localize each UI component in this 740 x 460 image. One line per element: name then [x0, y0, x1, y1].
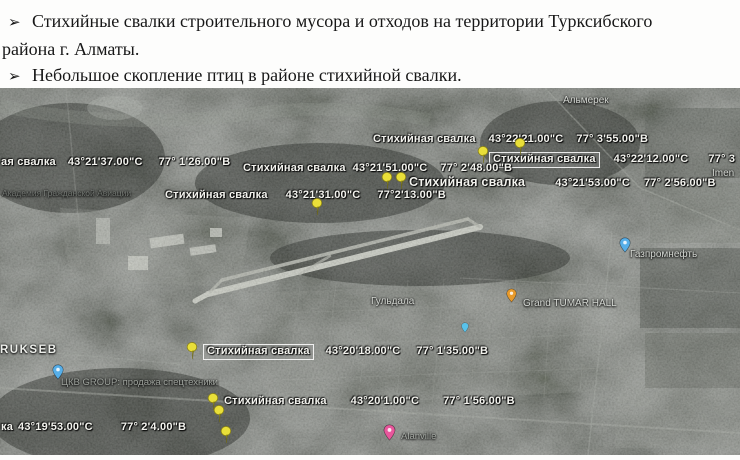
place-label-gazpromneft: Газпромнефть [630, 249, 697, 261]
place-label-almerek: Альмерек [563, 95, 609, 107]
dump-lon: 77° 3'55.00"В [576, 133, 648, 146]
yellow-pushpin-icon [395, 172, 408, 190]
yellow-pushpin-icon [381, 172, 394, 190]
bullet-item: ➢Стихийные свалки строительного мусора и… [2, 8, 738, 62]
bullet-text: Небольшое скопление птиц в районе стихий… [32, 65, 462, 85]
slide-page: ➢Стихийные свалки строительного мусора и… [0, 0, 740, 460]
place-label-tumar-hall: Grand TUMAR HALL [523, 298, 617, 310]
dump-site-label: ка43°19'53.00"С77° 2'4.00"В [1, 421, 186, 434]
dump-lon: 77° 1'56.00"В [443, 395, 515, 408]
place-label-aviation-academy: Академия Гражданской Авиации [2, 187, 131, 199]
yellow-pushpin-icon [311, 198, 324, 216]
bullet-text: района г. Алматы. [2, 39, 139, 59]
dump-lon: 77° 1'35.00"В [416, 345, 488, 358]
dump-lat: 43°21'53.00"С [555, 177, 630, 190]
orange-place-marker-icon [506, 288, 517, 303]
dump-site-name: ая свалка [1, 156, 56, 169]
satellite-map-image: Стихийная свалка43°22'21.00"С77° 3'55.00… [0, 88, 740, 455]
dump-site-label: Стихийная свалка43°21'31.00"С77°2'13.00"… [165, 189, 446, 202]
dump-site-name: Стихийная свалка [373, 133, 476, 146]
place-label-alanville: Alanville [401, 431, 436, 443]
dump-lon: 77° 2'4.00"В [121, 421, 186, 434]
dump-lon: 77° 1'26.00"В [159, 156, 231, 169]
place-label-rukseb: RUKSEB [0, 344, 58, 356]
yellow-pushpin-icon [186, 342, 199, 360]
dump-lat: 43°19'53.00"С [18, 421, 93, 434]
dump-site-name: Стихийная свалка [243, 162, 346, 175]
dump-site-name: ка [1, 421, 13, 434]
dump-lat: 43°22'12.00"С [614, 153, 689, 166]
dump-site-label: Стихийная свалка43°22'21.00"С77° 3'55.00… [373, 133, 648, 146]
bullet-arrow-icon: ➢ [8, 64, 32, 90]
yellow-pushpin-icon [514, 138, 527, 156]
place-label-ckb-group: ЦКВ GROUP: продажа спецтехники [61, 377, 218, 389]
pink-place-marker-icon [383, 424, 395, 440]
dump-lon: 77° 2'56.00"В [644, 177, 716, 190]
dump-site-name: Стихийная свалка [224, 395, 327, 408]
dump-site-label: Стихийная свалка43°21'53.00"С77° 2'56.00… [409, 176, 716, 190]
dump-site-label: Стихийная свалка43°20'1.00"С77° 1'56.00"… [224, 395, 515, 408]
dump-lat: 43°20'18.00"С [326, 345, 401, 358]
yellow-pushpin-icon [213, 405, 226, 423]
bullet-item: ➢Небольшое скопление птиц в районе стихи… [2, 62, 738, 90]
bullet-arrow-icon: ➢ [8, 10, 32, 36]
dump-site-label: ая свалка43°21'37.00"С77° 1'26.00"В [1, 156, 230, 169]
dump-lat: 43°20'1.00"С [351, 395, 419, 408]
dump-lon: 77°2'13.00"В [377, 189, 445, 202]
bullet-list: ➢Стихийные свалки строительного мусора и… [2, 8, 738, 90]
dump-site-name: Стихийная свалка [203, 344, 314, 360]
dump-site-name: Стихийная свалка [165, 189, 268, 202]
place-label-imeni: Imen [712, 168, 734, 180]
dump-site-name: Стихийная свалка [409, 176, 525, 189]
bullet-text: Стихийные свалки строительного мусора и … [32, 11, 652, 31]
dump-lat: 43°21'37.00"С [68, 156, 143, 169]
dump-lon: 77° 3 [708, 153, 735, 166]
dump-site-label: Стихийная свалка43°20'18.00"С77° 1'35.00… [203, 344, 488, 360]
cyan-place-marker-icon [461, 320, 469, 331]
place-label-guldala: Гульдала [371, 296, 414, 308]
yellow-pushpin-icon [220, 426, 233, 444]
yellow-pushpin-icon [477, 146, 490, 164]
dump-site-label: Стихийная свалка43°21'51.00"С77° 2'48.00… [243, 162, 512, 175]
